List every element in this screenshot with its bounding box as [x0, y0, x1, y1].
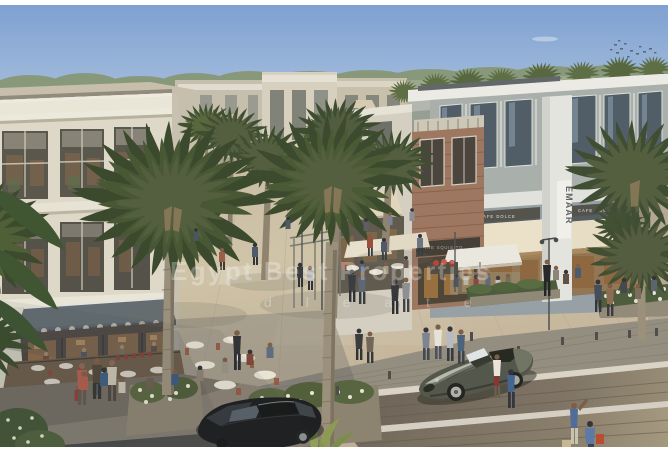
svg-text:Egypt Best Properties: Egypt Best Properties: [170, 256, 492, 286]
svg-text:d l e a t e: d l e a t e: [264, 294, 487, 310]
